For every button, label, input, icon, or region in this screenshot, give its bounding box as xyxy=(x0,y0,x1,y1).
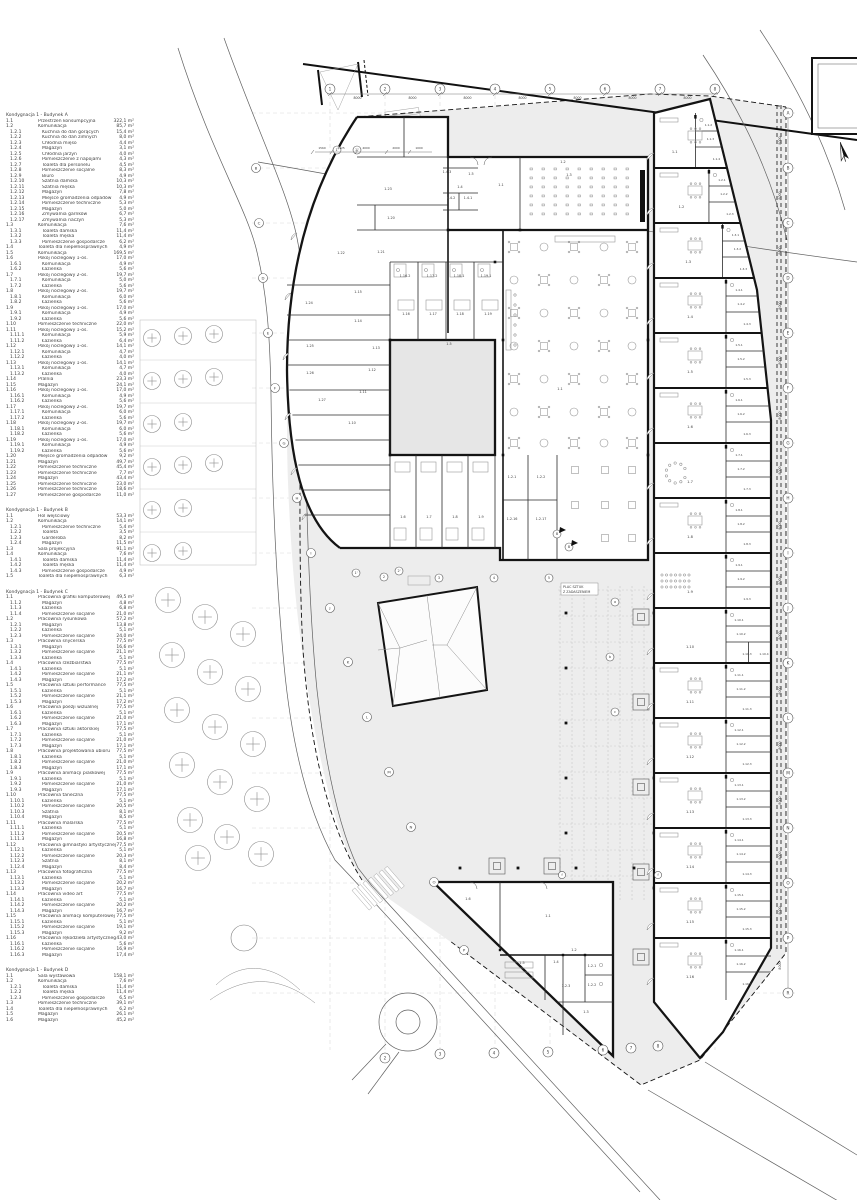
room-label: 1.13.2 xyxy=(736,797,745,801)
tree-icon xyxy=(144,545,161,562)
grid-bubble-label: N xyxy=(410,824,413,829)
room-label: 1.8 xyxy=(687,535,693,539)
room-label: 1.13 xyxy=(686,810,694,814)
tree-icon xyxy=(175,371,192,388)
room-label: 1.16.2 xyxy=(736,962,745,966)
room-label: 1.2 xyxy=(571,948,576,952)
room-label: 1.3.2 xyxy=(734,247,742,251)
grid-bubble-label: J xyxy=(328,605,330,610)
room-label: 1.5.3 xyxy=(743,377,751,381)
tree-icon xyxy=(165,698,190,723)
room-label: 1.4 xyxy=(687,315,693,319)
room-label: 1.9 xyxy=(478,515,483,519)
dimension-label: 2000 xyxy=(392,146,400,150)
building-d-outline xyxy=(433,882,613,1056)
dimension-label: 8000 xyxy=(408,96,416,100)
grid-bubble-label: 4 xyxy=(493,1051,496,1056)
grid-bubble-label: 5 xyxy=(547,1050,550,1055)
room-label: 1.10.3 xyxy=(742,652,751,656)
room-area: 17,4 m² xyxy=(116,953,134,959)
projection-screen xyxy=(640,170,645,222)
room-label: 1.23 xyxy=(384,187,392,191)
door-jamb xyxy=(708,170,710,174)
room-label: 1.12 xyxy=(686,755,694,759)
room-label: 1.2.2 xyxy=(588,983,597,987)
door-jamb xyxy=(647,339,650,342)
room-label: 1.8.3 xyxy=(743,542,751,546)
door-jamb xyxy=(494,261,497,264)
dimension-label: 8000 xyxy=(683,96,691,100)
road-bottomright xyxy=(705,1062,857,1155)
door-jamb xyxy=(389,454,392,457)
room-label: 1.14 xyxy=(686,865,695,869)
room-label: 1.16 xyxy=(402,312,410,316)
grid-bubble-label: b xyxy=(609,655,611,659)
tree-icon xyxy=(206,369,223,386)
room-label: 1.2.1 xyxy=(588,964,597,968)
grid-bubble-label: 2 xyxy=(383,575,385,579)
room-label: 1.9.3 xyxy=(743,597,751,601)
door-jamb xyxy=(725,885,727,889)
garden-path xyxy=(210,982,315,1003)
room-label: 1.20 xyxy=(387,216,395,220)
room-label: 1.17 xyxy=(429,312,437,316)
building-a-b xyxy=(283,117,649,560)
door-jamb xyxy=(725,445,727,449)
door-jamb xyxy=(725,610,727,614)
grid-bubble-label: K xyxy=(787,661,790,666)
room-label: 1.4 xyxy=(457,185,462,189)
tree-icon xyxy=(144,416,161,433)
room-area: 11,0 m² xyxy=(116,493,134,499)
roundabout-approach xyxy=(352,1044,386,1080)
room-label: 1.11.3 xyxy=(742,707,751,711)
room-label: 1.9 xyxy=(687,590,693,594)
room-label: 1.16 xyxy=(686,975,695,979)
room-label: 1.14.2 xyxy=(736,852,745,856)
room-label: 1.18 xyxy=(456,312,464,316)
tree-icon xyxy=(203,715,228,740)
architectural-site-plan-sheet: Kondygnacja 1 - Budynek A1.1Przestrzeń k… xyxy=(0,0,857,1200)
canopy-column-small xyxy=(565,612,568,615)
grid-bubble-label: 5 xyxy=(549,87,552,92)
tree-icon xyxy=(236,677,261,702)
room-label: 1.12.2 xyxy=(736,742,745,746)
dimension-label: 8000 xyxy=(518,96,526,100)
dimension-label: 8000 xyxy=(778,961,782,969)
tree-icon xyxy=(144,502,161,519)
tree-icon xyxy=(144,330,161,347)
canopy-column-base xyxy=(544,858,560,874)
room-label: 1.18.1 xyxy=(454,274,465,278)
tree-icon xyxy=(175,414,192,431)
room-label: 1.15 xyxy=(354,290,362,294)
grid-bubble-label: M xyxy=(786,771,790,776)
dimension-label: 8000 xyxy=(778,356,782,364)
courtyard xyxy=(390,340,495,455)
grid-bubble-label: 2 xyxy=(384,87,387,92)
room-label: 1.11 xyxy=(686,700,694,704)
dimension-label: 8000 xyxy=(778,191,782,199)
room-label: 1.7.3 xyxy=(743,487,751,491)
grid-bubble-label: 7 xyxy=(630,1046,633,1051)
room-label: 1.5.1 xyxy=(735,343,743,347)
room-label: 1.14 xyxy=(354,319,362,323)
legend-room-row: 1.6Magazyn45,2 m² xyxy=(6,1018,134,1024)
room-label: 1.3 xyxy=(566,173,571,177)
room-label: 1.11 xyxy=(359,390,367,394)
dimension-label: 8000 xyxy=(778,796,782,804)
room-label: 1.6 xyxy=(465,897,470,901)
door-jamb xyxy=(502,339,505,342)
door-jamb xyxy=(499,949,501,951)
room-label: 1.1 xyxy=(557,387,562,391)
canopy-column-small xyxy=(565,667,568,670)
tree-icon xyxy=(175,543,192,560)
room-label: 1.6.1 xyxy=(735,398,743,402)
grid-bubble-label: 3 xyxy=(439,87,442,92)
room-label: 1.16.2 xyxy=(400,274,411,278)
grid-bubble-label: G xyxy=(786,441,789,446)
room-label: 1.10 xyxy=(686,645,695,649)
door-jamb xyxy=(519,229,522,232)
grid-bubble-label: D xyxy=(786,276,789,281)
room-label: 1.15.1 xyxy=(734,893,743,897)
canopy-column-small xyxy=(633,867,636,870)
door-jamb xyxy=(389,339,392,342)
grid-bubble-label: 7 xyxy=(659,87,662,92)
plaza-annotation: PLAC SZTUKZ ZADASZENIEM xyxy=(561,583,598,595)
dimension-label: 8000 xyxy=(778,521,782,529)
road-bottomright xyxy=(648,1090,857,1200)
grid-bubble-label: c xyxy=(614,710,616,714)
room-label: 1.17.2 xyxy=(427,274,438,278)
grid-bubble-label: J xyxy=(786,606,788,611)
room-label: 1.6.2 xyxy=(737,412,745,416)
room-label: 1.10 xyxy=(348,421,356,425)
room-label: 1.15.2 xyxy=(736,907,745,911)
room-label: 1.3.1 xyxy=(732,233,740,237)
dimension-label: 4000 xyxy=(362,146,370,150)
room-label: 1.10.4 xyxy=(759,652,768,656)
room-label: 1.2.2 xyxy=(537,475,546,479)
dimension-label: 8000 xyxy=(573,96,581,100)
pavilion-outline xyxy=(378,587,487,706)
grid-bubble-label: E xyxy=(787,331,790,336)
grid-bubble-label: I xyxy=(787,551,788,556)
door-jamb xyxy=(725,500,727,504)
room-name: Pomieszczenie gospodarcze xyxy=(38,493,116,499)
door-jamb xyxy=(502,454,505,457)
dimension-label: 8000 xyxy=(778,246,782,254)
tree-icon xyxy=(175,500,192,517)
tree-icon xyxy=(231,622,256,647)
canopy-column-small xyxy=(517,867,520,870)
room-number: 1.16.3 xyxy=(6,953,42,959)
grid-bubble-label: I xyxy=(310,550,311,555)
room-label: 1.11.1 xyxy=(734,673,743,677)
building-topright xyxy=(812,58,857,163)
grid-bubble-label: 3 xyxy=(438,576,440,580)
room-label: 1.13 xyxy=(372,346,380,350)
driveway-dash xyxy=(364,60,368,96)
tree-icon xyxy=(156,588,181,613)
door-jamb xyxy=(725,830,727,834)
parcel-boundary xyxy=(140,320,256,565)
dimension-label: 8000 xyxy=(628,96,636,100)
canopy-column-small xyxy=(575,867,578,870)
canopy-column-base xyxy=(633,609,649,625)
room-label: 1.2 xyxy=(679,205,685,209)
grid-bubble-label: M xyxy=(387,769,390,774)
grid-bubble-label: B xyxy=(255,165,258,170)
plaza-label: PLAC SZTUK xyxy=(563,585,584,589)
room-label: 1.2.1 xyxy=(718,178,726,182)
dimension-label: 8000 xyxy=(778,301,782,309)
room-label: 1.9.2 xyxy=(737,577,745,581)
room-label: 1.10.1 xyxy=(734,618,743,622)
tree-icon xyxy=(178,808,203,833)
door-jamb xyxy=(562,954,564,956)
tree-icon xyxy=(144,459,161,476)
room-label: 1.1 xyxy=(545,914,550,918)
room-label: 1.5 xyxy=(446,342,451,346)
grid-bubble-label: N xyxy=(786,826,789,831)
room-label: 1.12.1 xyxy=(734,728,743,732)
tree-icon xyxy=(186,846,211,871)
room-name: Toaleta dla niepełnosprawnych xyxy=(38,574,117,580)
legend-section: Kondygnacja 1 - Budynek D1.1Sala wystawo… xyxy=(6,968,134,1023)
tree-icon xyxy=(170,753,195,778)
room-label: 1.3 xyxy=(583,1010,588,1014)
room-label: 1.19.1 xyxy=(481,274,492,278)
tree-icon xyxy=(175,457,192,474)
building-a-fill xyxy=(287,117,648,560)
legend-room-row: 1.16.3Magazyn17,4 m² xyxy=(6,953,134,959)
room-label: 1.1.2 xyxy=(705,123,713,127)
grid-bubble-label: O xyxy=(432,879,435,884)
legend-room-row: 1.5Toaleta dla niepełnosprawnych6,3 m² xyxy=(6,574,134,580)
room-label: 1.4.1 xyxy=(464,196,473,200)
room-label: 1.16.1 xyxy=(734,948,743,952)
canopy-column-base xyxy=(633,864,649,880)
door-jamb xyxy=(694,115,696,119)
grid-bubble-label: 6 xyxy=(604,87,607,92)
roundabout-island xyxy=(396,1010,420,1034)
door-jamb xyxy=(725,665,727,669)
room-label: 1.14.1 xyxy=(734,838,743,842)
room-label: 1.5 xyxy=(687,370,693,374)
room-label: 1.13.1 xyxy=(734,783,743,787)
dimension-label: 8000 xyxy=(778,686,782,694)
dimension-label: 1000 xyxy=(415,146,423,150)
dimension-label: 8000 xyxy=(778,576,782,584)
room-name: Magazyn xyxy=(42,953,116,959)
room-label: 1.22 xyxy=(337,251,345,255)
door-jamb xyxy=(725,775,727,779)
room-label: 1.8 xyxy=(452,515,457,519)
building-d xyxy=(433,882,613,1056)
grid-bubble-label: 2' xyxy=(397,569,400,573)
grid-bubble-label: 6 xyxy=(602,1048,605,1053)
door-jamb xyxy=(447,229,450,232)
door-jamb xyxy=(725,335,727,339)
room-label: 1.8.1 xyxy=(735,508,743,512)
neighbor-building xyxy=(812,58,857,134)
dimension-label: 1560 xyxy=(318,146,326,150)
room-label: 1.5 xyxy=(468,172,473,176)
room-label: 1.15 xyxy=(686,920,694,924)
legend-section: Kondygnacja 1 - Budynek B1.1Hol wejściow… xyxy=(6,508,134,580)
room-label: 1.12.3 xyxy=(742,762,751,766)
grid-bubble-label: 1' xyxy=(354,571,357,575)
door-jamb xyxy=(721,225,723,229)
tree-icon xyxy=(206,455,223,472)
room-label: 1.15.3 xyxy=(742,927,751,931)
door-jamb xyxy=(647,454,650,457)
room-label: 1.2.3 xyxy=(562,984,571,988)
canopy-column-small xyxy=(459,867,462,870)
room-name: Magazyn xyxy=(38,1018,116,1024)
door-jamb xyxy=(725,280,727,284)
dimension-label: 8000 xyxy=(778,136,782,144)
room-label: 1.2.3 xyxy=(726,212,734,216)
tree-icon xyxy=(245,787,270,812)
room-label: 1.11.2 xyxy=(736,687,745,691)
room-label: 1.7.1 xyxy=(735,453,743,457)
room-schedule-legend: Kondygnacja 1 - Budynek A1.1Przestrzeń k… xyxy=(6,113,134,1033)
room-label: 1.6.3 xyxy=(743,432,751,436)
room-label: 1.5 xyxy=(519,961,524,965)
dimension-label: 2425 xyxy=(337,146,345,150)
grid-bubble-label: 8 xyxy=(657,1044,660,1049)
canopy-column-base xyxy=(633,949,649,965)
tree-icon xyxy=(193,605,218,630)
room-label: 1.26 xyxy=(306,371,314,375)
room-label: 1.2.17 xyxy=(536,517,547,521)
room-label: 1.3.3 xyxy=(740,267,748,271)
grid-bubble-label: 8 xyxy=(714,87,717,92)
room-area: 6,3 m² xyxy=(117,574,134,580)
grid-bubble-label: B xyxy=(787,166,790,171)
grid-bubble-label: C xyxy=(787,221,790,226)
canopy-column-base xyxy=(489,858,505,874)
room-label: 1.6 xyxy=(687,425,693,429)
room-label: 1.27 xyxy=(318,398,326,402)
grid-bubble-label: 4 xyxy=(493,576,495,580)
driveway-bar xyxy=(358,62,362,97)
tree-icon xyxy=(241,732,266,757)
grid-bubble-label: a xyxy=(614,600,616,604)
room-label: 1.4.3 xyxy=(743,322,751,326)
door-jamb xyxy=(725,390,727,394)
grid-bubble-label: H xyxy=(786,496,789,501)
room-number: 1.6 xyxy=(6,1018,38,1024)
dim-tick xyxy=(311,150,314,154)
tree-icon xyxy=(160,643,185,668)
room-label: 1.13.3 xyxy=(742,817,751,821)
grid-bubble-label: H xyxy=(296,495,299,500)
room-label: 1.24 xyxy=(305,301,313,305)
dimension-label: 8000 xyxy=(778,741,782,749)
grid-bubble-label: 3 xyxy=(439,1052,442,1057)
dimension-label: 8000 xyxy=(353,96,361,100)
dimension-label: 8000 xyxy=(778,466,782,474)
canopy-column-small xyxy=(565,777,568,780)
room-label: 1.4.2 xyxy=(447,196,456,200)
tree-icon xyxy=(175,328,192,345)
room-label: 1.2.16 xyxy=(507,517,518,521)
room-label: 1.7 xyxy=(426,515,431,519)
legend-section: Kondygnacja 1 - Budynek A1.1Przestrzeń k… xyxy=(6,113,134,498)
room-label: 1.3 xyxy=(685,260,691,264)
canopy-column-base xyxy=(633,779,649,795)
door-jamb xyxy=(725,555,727,559)
room-label: 1.7.2 xyxy=(737,467,745,471)
room-label: 1.21 xyxy=(377,250,385,254)
tree-icon xyxy=(206,326,223,343)
room-label: 1.2.1 xyxy=(508,475,517,479)
door-jamb xyxy=(725,940,727,944)
room-label: 1.7 xyxy=(687,480,693,484)
room-label: 1.2.2 xyxy=(720,192,728,196)
dimension-label: 8000 xyxy=(778,631,782,639)
door-jamb xyxy=(725,720,727,724)
room-label: 1.14.3 xyxy=(742,872,751,876)
room-label: 1.1.3 xyxy=(707,137,715,141)
roundabout-outer xyxy=(379,993,437,1051)
dimension-label: 8000 xyxy=(778,851,782,859)
tree-icon xyxy=(144,373,161,390)
room-label: 1.1 xyxy=(498,183,503,187)
facade-door-arc xyxy=(291,233,297,240)
tree-icon xyxy=(198,660,223,685)
room-label: 1.25 xyxy=(306,344,314,348)
room-area: 45,2 m² xyxy=(116,1018,134,1024)
canopy-column-small xyxy=(565,722,568,725)
room-label: 1.4.2 xyxy=(737,302,745,306)
dimension-label: 8000 xyxy=(463,96,471,100)
tree-icon xyxy=(208,770,233,795)
grid-bubble-label: 5 xyxy=(548,576,550,580)
room-label: 1.12 xyxy=(368,368,376,372)
room-label: 1.4.1 xyxy=(735,288,743,292)
grid-bubble-label: G xyxy=(282,440,285,445)
grid-bubble-label: 1 xyxy=(329,87,332,92)
legend-room-row: 1.27Pomieszczenie gospodarcze11,0 m² xyxy=(6,493,134,499)
room-number: 1.27 xyxy=(6,493,38,499)
room-label: 1.9.1 xyxy=(735,563,743,567)
room-number: 1.5 xyxy=(6,574,38,580)
canopy-column-small xyxy=(565,832,568,835)
grid-bubble-label: R xyxy=(787,991,790,996)
room-label: 1.4.3 xyxy=(443,170,452,174)
room-label: 1.2 xyxy=(560,160,565,164)
grid-bubble-label: K xyxy=(347,659,350,664)
room-label: 1.5.2 xyxy=(737,357,745,361)
tree-icon xyxy=(249,842,274,867)
room-label: 1.6 xyxy=(400,515,405,519)
grid-bubble-label: C xyxy=(258,220,261,225)
green-area xyxy=(140,320,274,871)
room-label: 1.4 xyxy=(553,960,558,964)
grid-bubble-label: A xyxy=(787,111,790,116)
room-label: 1.8.2 xyxy=(737,522,745,526)
room-label: 1.16.3 xyxy=(742,982,751,986)
door-jamb xyxy=(584,954,586,956)
plaza-label: Z ZADASZENIEM xyxy=(563,590,591,594)
canopy-column-base xyxy=(633,694,649,710)
